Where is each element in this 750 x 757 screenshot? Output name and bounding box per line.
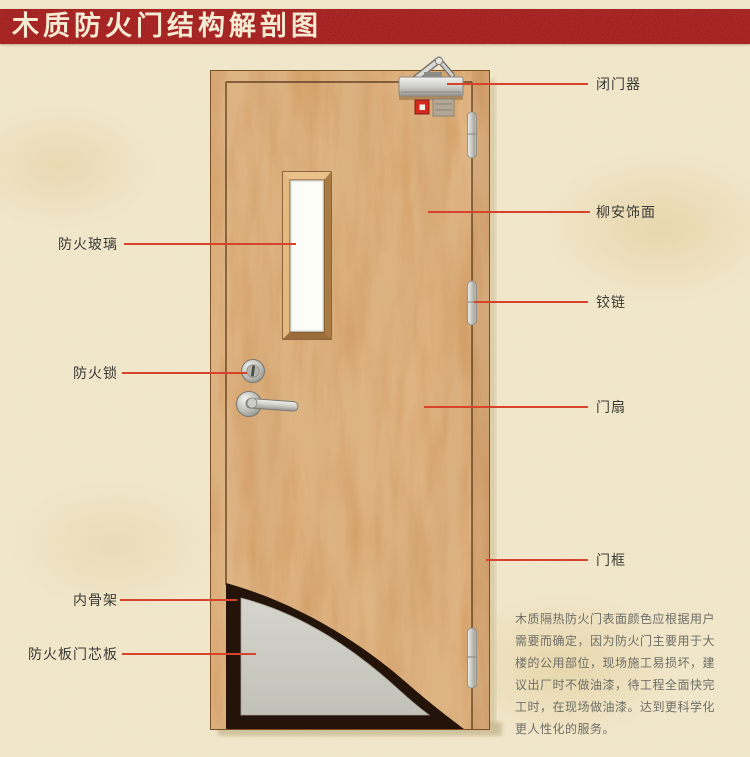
description-line: 楼的公用部位，现场施工易损坏，建 [515, 652, 720, 674]
hinge-bottom [468, 628, 477, 688]
description-paragraph: 木质隔热防火门表面颜色应根据用户 需要而确定，因为防火门主要用于大 楼的公用部位… [515, 608, 720, 740]
description-line: 议出厂时不做油漆，待工程全面快完 [515, 674, 720, 696]
label-fire-glass: 防火玻璃 [58, 236, 118, 253]
label-lauan-veneer: 柳安饰面 [596, 204, 656, 221]
label-fire-core-board: 防火板门芯板 [28, 646, 118, 663]
alarm-indicator [415, 100, 429, 114]
description-line: 需要而确定，因为防火门主要用于大 [515, 630, 720, 652]
fire-glass-window [283, 172, 331, 339]
release-box [433, 99, 454, 116]
label-door-frame: 门框 [596, 552, 626, 569]
fire-lock [242, 360, 265, 383]
label-hinge: 铰链 [596, 294, 626, 311]
label-door-leaf: 门扇 [596, 399, 626, 416]
description-line: 更人性化的服务。 [515, 718, 720, 740]
page: 木质防火门结构解剖图 [0, 0, 750, 757]
description-line: 工时，在现场做油漆。达到更科学化 [515, 696, 720, 718]
label-inner-skeleton: 内骨架 [73, 592, 118, 609]
label-fire-lock: 防火锁 [73, 365, 118, 382]
description-line: 木质隔热防火门表面颜色应根据用户 [515, 608, 720, 630]
label-door-closer: 闭门器 [596, 76, 641, 93]
hinge-top [468, 112, 477, 158]
